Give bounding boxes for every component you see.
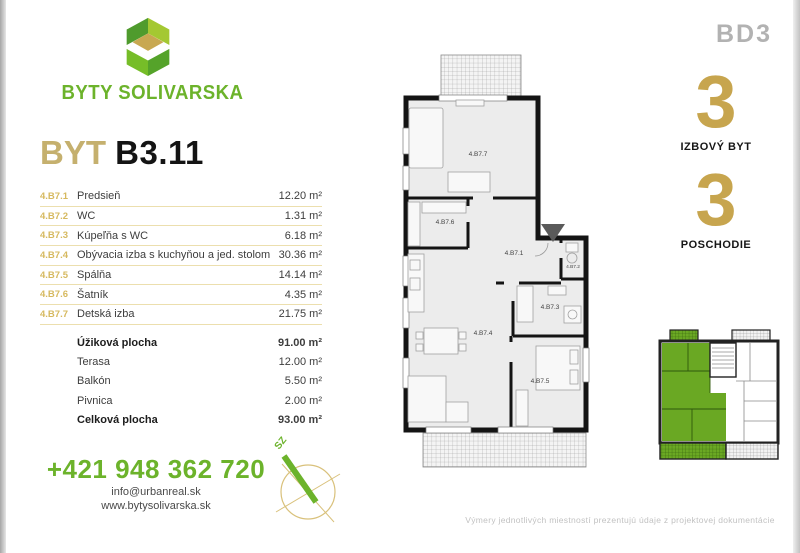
building-badge: BD3 <box>716 20 772 49</box>
room-code: 4.B7.6 <box>40 289 77 300</box>
summary-name: Úžiková plocha <box>77 337 278 349</box>
summary-area: 12.00 m² <box>279 356 322 368</box>
floorplan: 4.B7.7 4.B7.6 4.B7.1 4.B7.2 4.B7.3 4.B7.… <box>398 46 666 499</box>
summary-area: 93.00 m² <box>278 414 322 426</box>
room-name: WC <box>77 210 285 222</box>
page-edge-right <box>793 0 800 553</box>
brand-logo-icon <box>118 14 178 78</box>
room-label-4b75: 4.B7.5 <box>531 378 550 385</box>
floor-key-plan <box>648 323 793 480</box>
room-area: 21.75 m² <box>279 308 322 320</box>
brand-name: BYTY SOLIVARSKA <box>61 82 233 105</box>
summary-name: Pivnica <box>77 395 285 407</box>
room-table-body: 4.B7.1Predsieň12.20 m²4.B7.2WC1.31 m²4.B… <box>40 187 322 325</box>
summary-row: Terasa12.00 m² <box>40 352 322 371</box>
terrace-bottom <box>423 433 586 467</box>
room-label-4b71: 4.B7.1 <box>505 250 524 257</box>
table-row: 4.B7.3Kúpeľňa s WC6.18 m² <box>40 226 322 246</box>
disclaimer-text: Výmery jednotlivých miestností prezentuj… <box>452 515 788 525</box>
summary-area: 5.50 m² <box>285 375 322 387</box>
room-area: 30.36 m² <box>279 249 322 261</box>
compass-direction-label: SZ <box>273 435 290 452</box>
summary-table: Úžiková plocha91.00 m²Terasa12.00 m²Balk… <box>40 333 322 429</box>
summary-table-body: Úžiková plocha91.00 m²Terasa12.00 m²Balk… <box>40 333 322 429</box>
summary-area: 91.00 m² <box>278 337 322 349</box>
room-name: Detská izba <box>77 308 279 320</box>
room-name: Šatník <box>77 289 285 301</box>
rooms-count-label: IZBOVÝ BYT <box>670 141 762 153</box>
phone-number[interactable]: +421 948 362 720 <box>20 454 292 485</box>
terrace-top <box>441 55 521 96</box>
table-row: 4.B7.7Detská izba21.75 m² <box>40 305 322 325</box>
room-name: Obývacia izba s kuchyňou a jed. stolom <box>77 249 279 261</box>
summary-name: Terasa <box>77 356 279 368</box>
room-code: 4.B7.5 <box>40 270 77 281</box>
room-name: Kúpeľňa s WC <box>77 230 285 242</box>
table-row: 4.B7.1Predsieň12.20 m² <box>40 187 322 207</box>
stair-core <box>710 343 736 377</box>
room-label-4b74: 4.B7.4 <box>474 330 493 337</box>
brand-logo: BYTY SOLIVARSKA <box>55 14 240 105</box>
room-table: 4.B7.1Predsieň12.20 m²4.B7.2WC1.31 m²4.B… <box>40 187 322 325</box>
room-area: 12.20 m² <box>279 190 322 202</box>
unit-facts: 3 IZBOVÝ BYT 3 POSCHODIE <box>670 66 762 262</box>
table-row: 4.B7.5Spálňa14.14 m² <box>40 266 322 286</box>
page-edge-left <box>0 0 6 553</box>
summary-row: Pivnica2.00 m² <box>40 391 322 410</box>
rooms-count-value: 3 <box>670 66 762 138</box>
flyer-page: BYTY SOLIVARSKA BD3 BYT B3.11 4.B7.1Pred… <box>0 0 800 553</box>
room-code: 4.B7.4 <box>40 250 77 261</box>
room-label-4b77: 4.B7.7 <box>469 151 488 158</box>
contact-block: +421 948 362 720 info@urbanreal.sk www.b… <box>20 454 292 513</box>
table-row: 4.B7.6Šatník4.35 m² <box>40 285 322 305</box>
unit-title-prefix: BYT <box>40 134 106 171</box>
unit-title-number: B3.11 <box>115 134 204 171</box>
table-row: 4.B7.2WC1.31 m² <box>40 207 322 227</box>
floor-number-label: POSCHODIE <box>670 239 762 251</box>
room-code: 4.B7.7 <box>40 309 77 320</box>
room-label-4b72: 4.B7.2 <box>566 264 580 270</box>
summary-name: Celková plocha <box>77 414 278 426</box>
floor-number-value: 3 <box>670 164 762 236</box>
room-area: 1.31 m² <box>285 210 322 222</box>
email-link[interactable]: info@urbanreal.sk <box>20 485 292 499</box>
unit-title: BYT B3.11 <box>40 134 204 172</box>
summary-name: Balkón <box>77 375 285 387</box>
compass-rose-icon: SZ <box>266 426 350 537</box>
summary-row: Balkón5.50 m² <box>40 372 322 391</box>
room-code: 4.B7.1 <box>40 191 77 202</box>
summary-row: Úžiková plocha91.00 m² <box>40 333 322 352</box>
room-name: Spálňa <box>77 269 279 281</box>
room-area: 6.18 m² <box>285 230 322 242</box>
room-area: 4.35 m² <box>285 289 322 301</box>
room-label-4b73: 4.B7.3 <box>541 304 560 311</box>
table-row: 4.B7.4Obývacia izba s kuchyňou a jed. st… <box>40 246 322 266</box>
room-code: 4.B7.2 <box>40 211 77 222</box>
room-name: Predsieň <box>77 190 279 202</box>
room-label-4b76: 4.B7.6 <box>436 219 455 226</box>
website-link[interactable]: www.bytysolivarska.sk <box>20 499 292 513</box>
room-code: 4.B7.3 <box>40 230 77 241</box>
room-area: 14.14 m² <box>279 269 322 281</box>
summary-area: 2.00 m² <box>285 395 322 407</box>
